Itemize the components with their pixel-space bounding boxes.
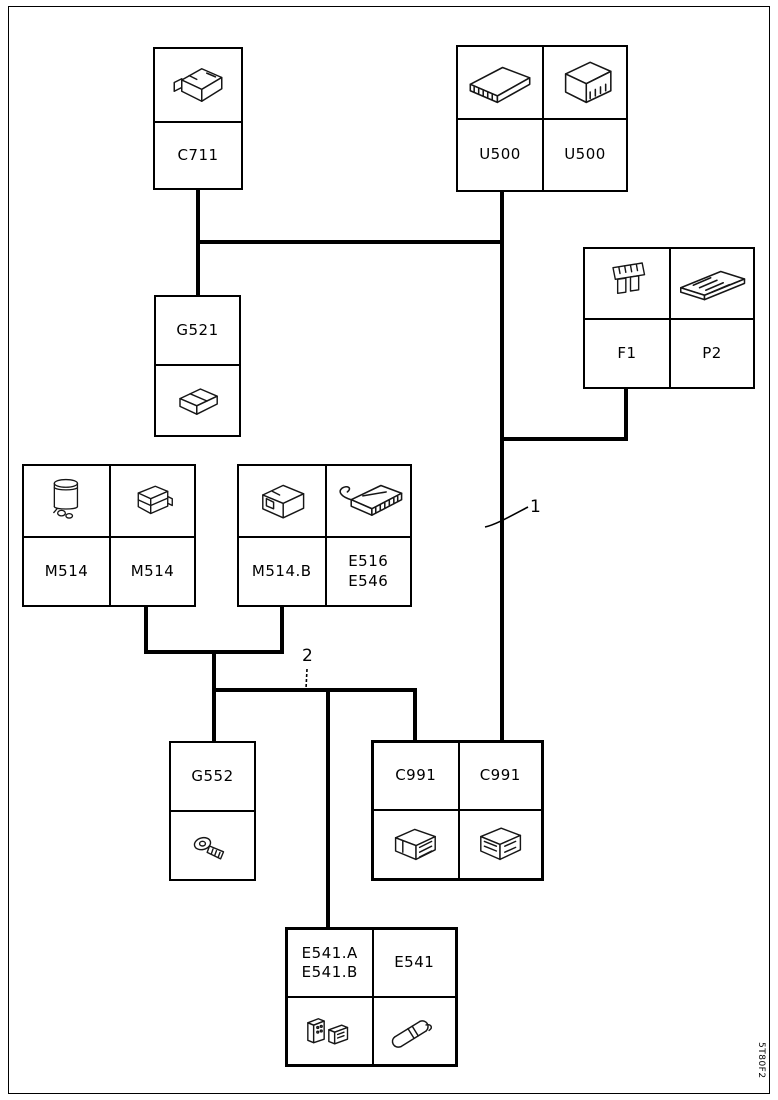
control-module-icon: [160, 55, 236, 115]
wire-branch-to-g552: [212, 650, 216, 745]
component-label: M514: [45, 562, 89, 582]
component-label: P2: [702, 344, 722, 364]
wire-branch-to-e541: [326, 688, 330, 932]
component-box-m514b-e516: M514.B E516 E546: [237, 464, 412, 607]
part-thumbnail-c711: [155, 49, 241, 121]
component-label: M514.B: [252, 562, 312, 582]
part-thumbnail-c991-male: [374, 809, 458, 878]
part-thumbnail-c991-female: [458, 809, 542, 878]
part-thumbnail-p2: [669, 249, 753, 318]
ecu-module-icon: [328, 470, 408, 532]
component-box-g521: G521: [154, 295, 241, 437]
part-thumbnail-m514-pump: [24, 466, 109, 536]
part-thumbnail-u500-flat: [458, 47, 542, 118]
wire-u500-trunk: [500, 185, 504, 743]
part-thumbnail-m514-bracket: [109, 466, 194, 536]
wire-branch-to-c991: [413, 688, 417, 745]
component-label: E541: [394, 953, 434, 973]
part-thumbnail-g552: [171, 810, 254, 879]
wire-branch-horizontal: [212, 688, 417, 692]
connector-housing-icon: [246, 471, 318, 531]
callout-1-label: 1: [530, 497, 541, 517]
component-box-c711: C711: [153, 47, 243, 190]
component-label: C991: [395, 766, 436, 786]
part-thumbnail-m514b: [239, 466, 325, 536]
component-label-cell: M514: [24, 536, 109, 605]
pump-reservoir-icon: [34, 470, 100, 532]
component-label-line: E541.B: [302, 963, 358, 983]
component-label: F1: [617, 344, 636, 364]
component-label: G552: [191, 767, 233, 787]
part-thumbnail-e516-e546: [325, 466, 411, 536]
component-label: C991: [480, 766, 521, 786]
component-label-line: E541.A: [302, 944, 358, 964]
circuit-board-icon: [672, 254, 752, 314]
callout-1-leader-line: [483, 503, 531, 530]
component-label: U500: [564, 145, 606, 165]
component-label-cell: F1: [585, 318, 669, 387]
component-box-m514: M514 M514: [22, 464, 196, 607]
wiring-diagram-page: 1 2 C711: [0, 0, 778, 1100]
component-label-cell: C711: [155, 121, 241, 188]
wire-trunk-horizontal: [196, 240, 504, 244]
doc-code: 5T80F2: [756, 1042, 766, 1079]
component-label-cell: M514: [109, 536, 194, 605]
component-label-line: E546: [348, 572, 388, 592]
component-label-multiline: E541.A E541.B: [302, 944, 358, 983]
component-label-cell: E541: [372, 930, 456, 996]
component-box-e541: E541.A E541.B E541: [285, 927, 458, 1067]
wire-f1p2-down: [624, 385, 628, 441]
connector-pair-icon: [295, 1002, 365, 1060]
part-thumbnail-u500-box: [542, 47, 626, 118]
blade-fuse-icon: [592, 255, 662, 313]
component-label-cell: M514.B: [239, 536, 325, 605]
component-label: G521: [176, 321, 218, 341]
component-box-g552: G552: [169, 741, 256, 881]
component-label-multiline: E516 E546: [348, 552, 388, 591]
component-box-f1-p2: F1 P2: [583, 247, 755, 389]
component-label: C711: [177, 146, 218, 166]
component-label-cell: G552: [171, 743, 254, 810]
component-label-cell: E541.A E541.B: [288, 930, 372, 996]
wire-m514b-down: [280, 600, 284, 654]
mounting-bracket-icon: [119, 472, 187, 530]
component-label: M514: [131, 562, 175, 582]
callout-2-label: 2: [302, 646, 313, 666]
connector-male-icon: [380, 815, 452, 875]
ring-terminal-icon: [178, 818, 248, 874]
component-label-cell: C991: [374, 743, 458, 809]
component-label-cell: E516 E546: [325, 536, 411, 605]
wire-m514-down: [144, 600, 148, 654]
flat-module-icon: [461, 52, 539, 114]
connector-block-icon: [162, 372, 234, 430]
cylindrical-sensor-icon: [377, 1002, 451, 1060]
part-thumbnail-g521: [156, 364, 239, 435]
component-label-cell: C991: [458, 743, 542, 809]
component-label-cell: U500: [458, 118, 542, 190]
component-label-cell: G521: [156, 297, 239, 364]
component-label-line: E516: [348, 552, 388, 572]
component-label-cell: U500: [542, 118, 626, 190]
component-label: U500: [479, 145, 521, 165]
connector-female-icon: [464, 815, 536, 875]
component-box-u500: U500 U500: [456, 45, 628, 192]
wire-f1p2-horizontal: [500, 437, 628, 441]
component-label-cell: P2: [669, 318, 753, 387]
part-thumbnail-f1: [585, 249, 669, 318]
component-box-c991: C991 C991: [371, 740, 544, 881]
callout-2-leader-line: [302, 668, 312, 691]
part-thumbnail-e541: [372, 996, 456, 1064]
box-module-icon: [546, 52, 624, 114]
part-thumbnail-e541-ab: [288, 996, 372, 1064]
